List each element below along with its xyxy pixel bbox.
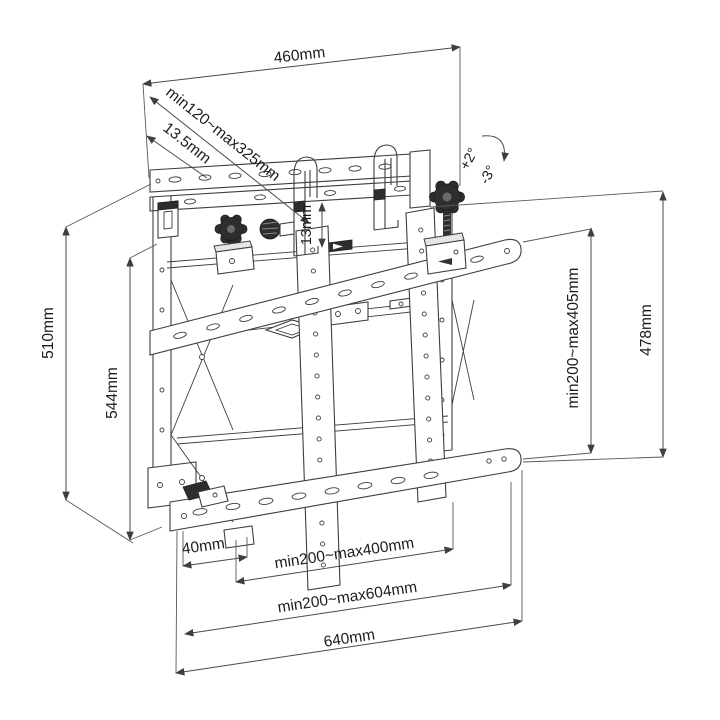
dim-label-left-outer-height: 510mm	[40, 307, 57, 359]
dim-label-bottom-outer-width: 640mm	[323, 626, 377, 650]
dim-left-outer-height: 510mm	[40, 184, 151, 543]
diagram-canvas: 460mm min120~max325mm 13.5mm +2° -3° 13m…	[0, 0, 720, 720]
dim-right-outer-height: 478mm	[430, 191, 663, 462]
dim-tilt: +2° -3°	[457, 136, 504, 187]
scissor-arms-right	[452, 300, 474, 405]
locking-knob-left	[214, 215, 254, 274]
dim-label-right-inner-height: min200~max405mm	[565, 268, 582, 409]
dim-label-left-inner-height: 544mm	[104, 367, 121, 419]
wall-mount-technical-drawing: 460mm min120~max325mm 13.5mm +2° -3° 13m…	[0, 0, 720, 720]
dim-label-right-outer-height: 478mm	[638, 304, 655, 356]
dim-label-bottom-inner-width: min200~max400mm	[273, 535, 415, 573]
dim-label-tilt-up: +2°	[457, 146, 482, 173]
dim-right-inner-height: min200~max405mm	[523, 228, 591, 459]
vesa-strip-left	[296, 226, 340, 590]
dim-label-bottom-offset: 40mm	[181, 535, 226, 558]
dim-label-bottom-middle-width: min200~max604mm	[276, 579, 418, 617]
dim-label-rail-gap: 13mm	[299, 205, 315, 245]
dim-label-tilt-down: -3°	[477, 163, 500, 187]
spacer-foot	[224, 526, 254, 548]
wall-plate	[150, 150, 430, 211]
corner-latch	[158, 201, 178, 238]
